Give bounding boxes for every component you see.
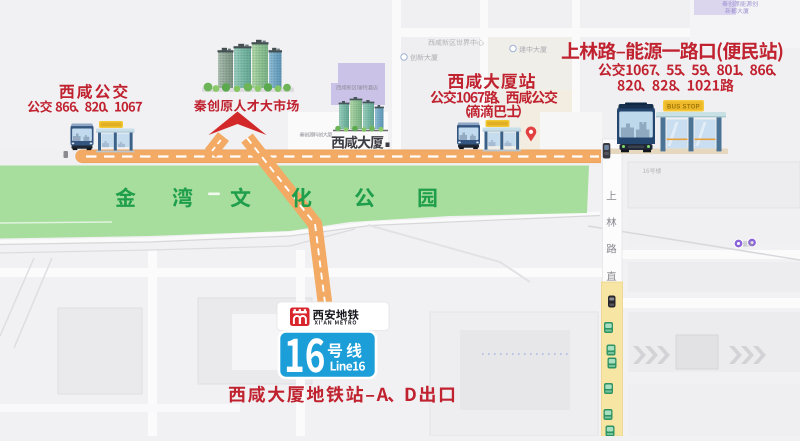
svg-text:BUS STOP: BUS STOP <box>667 104 700 110</box>
